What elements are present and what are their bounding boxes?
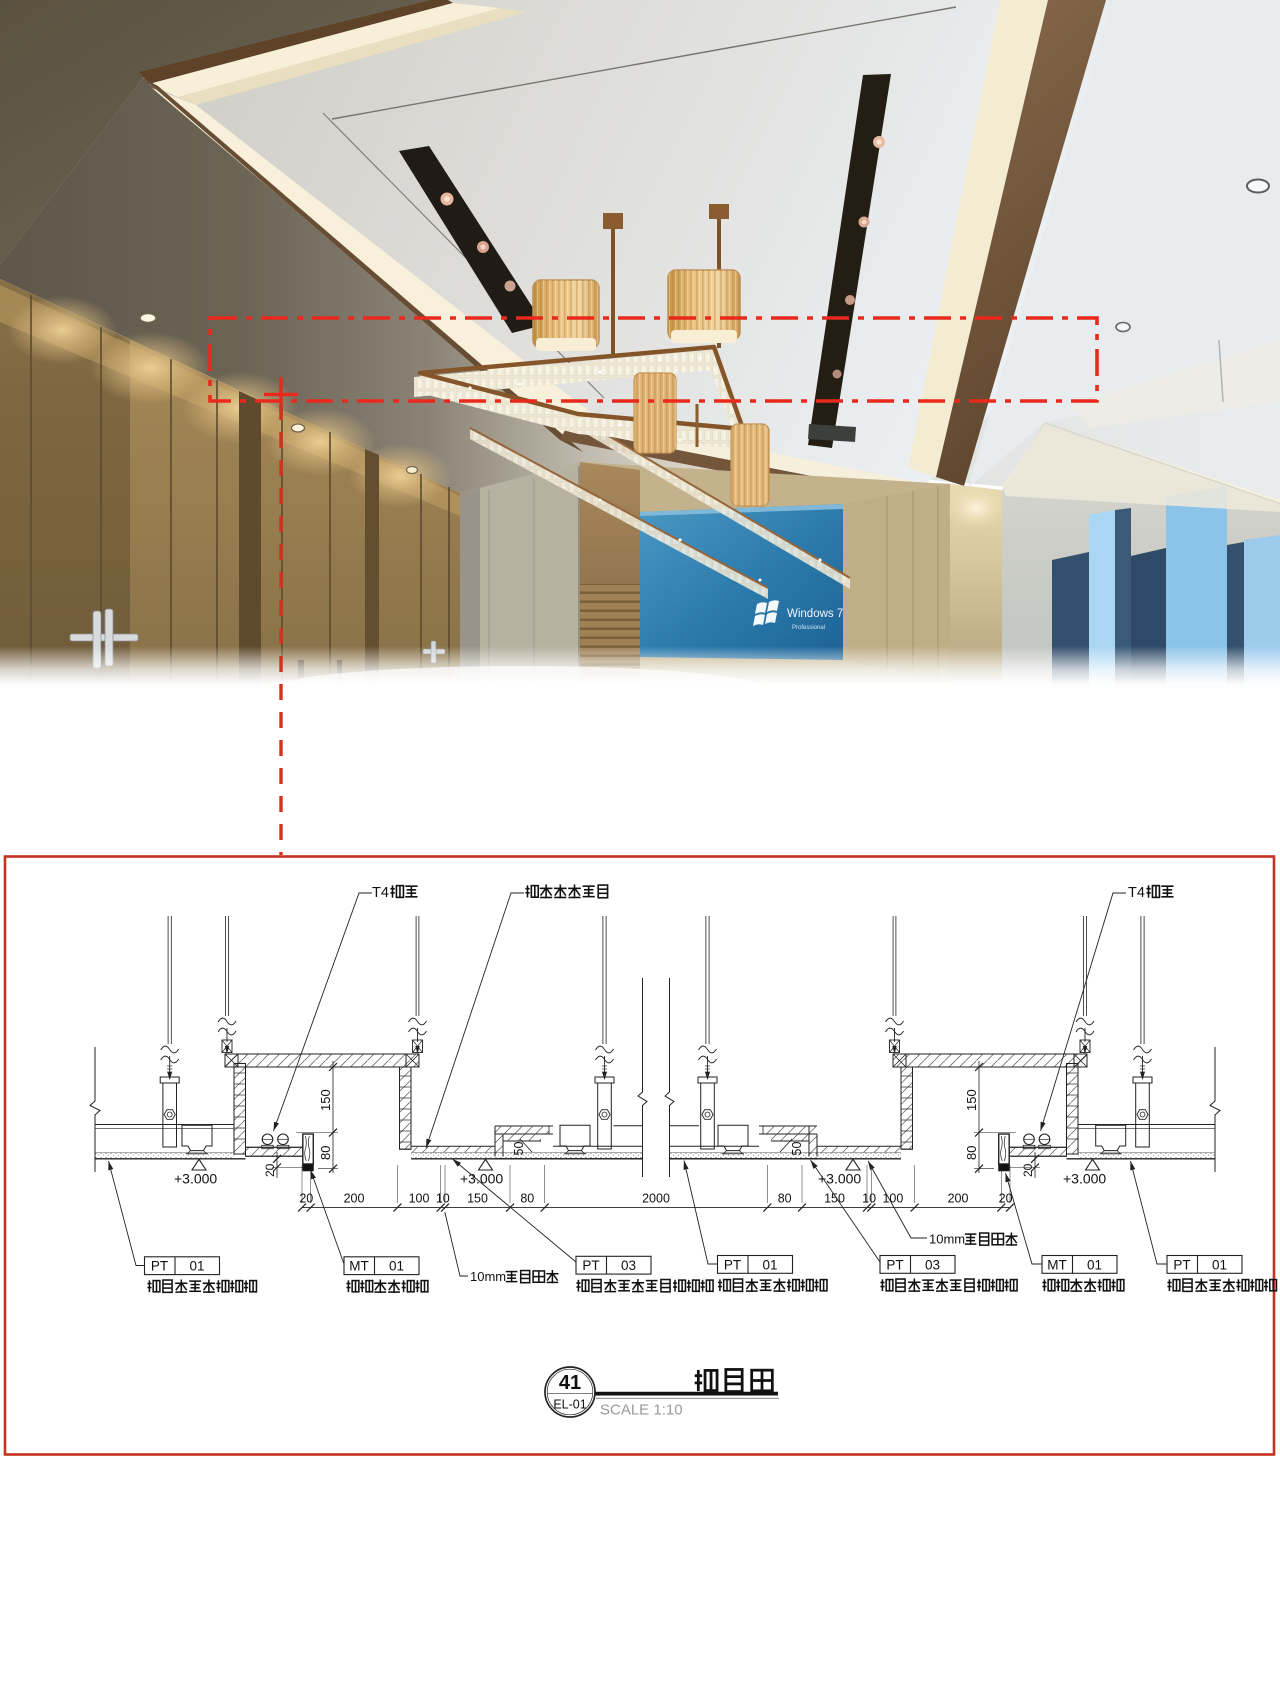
svg-text:T4: T4: [372, 885, 389, 901]
svg-text:01: 01: [1212, 1257, 1227, 1272]
svg-text:50: 50: [790, 1142, 804, 1156]
svg-text:200: 200: [948, 1192, 969, 1206]
svg-text:10mm: 10mm: [470, 1269, 506, 1284]
svg-text:T4: T4: [1128, 885, 1145, 901]
svg-text:20: 20: [999, 1192, 1013, 1206]
svg-text:10mm: 10mm: [929, 1232, 965, 1247]
svg-text:EL-01: EL-01: [553, 1398, 586, 1412]
svg-text:80: 80: [964, 1146, 979, 1160]
svg-text:+3.000: +3.000: [460, 1171, 503, 1187]
svg-text:150: 150: [467, 1192, 488, 1206]
svg-text:01: 01: [389, 1259, 404, 1274]
svg-text:01: 01: [189, 1259, 204, 1274]
svg-text:100: 100: [409, 1192, 430, 1206]
svg-text:+3.000: +3.000: [818, 1171, 861, 1187]
svg-text:SCALE 1:10: SCALE 1:10: [600, 1402, 683, 1419]
svg-text:80: 80: [318, 1146, 333, 1160]
svg-text:MT: MT: [1047, 1257, 1067, 1272]
svg-text:10: 10: [436, 1192, 450, 1206]
svg-text:10: 10: [862, 1192, 876, 1206]
svg-text:150: 150: [964, 1089, 979, 1111]
svg-text:PT: PT: [724, 1257, 741, 1272]
svg-text:100: 100: [882, 1192, 903, 1206]
svg-text:2000: 2000: [642, 1192, 670, 1206]
svg-text:03: 03: [621, 1258, 636, 1273]
svg-text:03: 03: [925, 1257, 940, 1272]
svg-text:PT: PT: [1173, 1257, 1190, 1272]
svg-text:Professional: Professional: [792, 625, 825, 631]
svg-text:20: 20: [299, 1192, 313, 1206]
svg-text:+3.000: +3.000: [174, 1171, 217, 1187]
svg-text:MT: MT: [349, 1259, 369, 1274]
svg-text:80: 80: [778, 1192, 792, 1206]
svg-text:PT: PT: [151, 1259, 168, 1274]
svg-text:200: 200: [344, 1192, 365, 1206]
svg-text:+3.000: +3.000: [1063, 1171, 1106, 1187]
svg-text:20: 20: [263, 1163, 277, 1177]
svg-text:PT: PT: [886, 1257, 903, 1272]
svg-text:150: 150: [824, 1192, 845, 1206]
svg-text:80: 80: [520, 1192, 534, 1206]
svg-text:41: 41: [559, 1372, 581, 1394]
svg-text:150: 150: [318, 1089, 333, 1111]
svg-text:Windows 7: Windows 7: [787, 608, 843, 620]
svg-text:PT: PT: [582, 1258, 599, 1273]
svg-text:20: 20: [1021, 1163, 1035, 1177]
svg-text:01: 01: [762, 1257, 777, 1272]
svg-text:01: 01: [1087, 1257, 1102, 1272]
